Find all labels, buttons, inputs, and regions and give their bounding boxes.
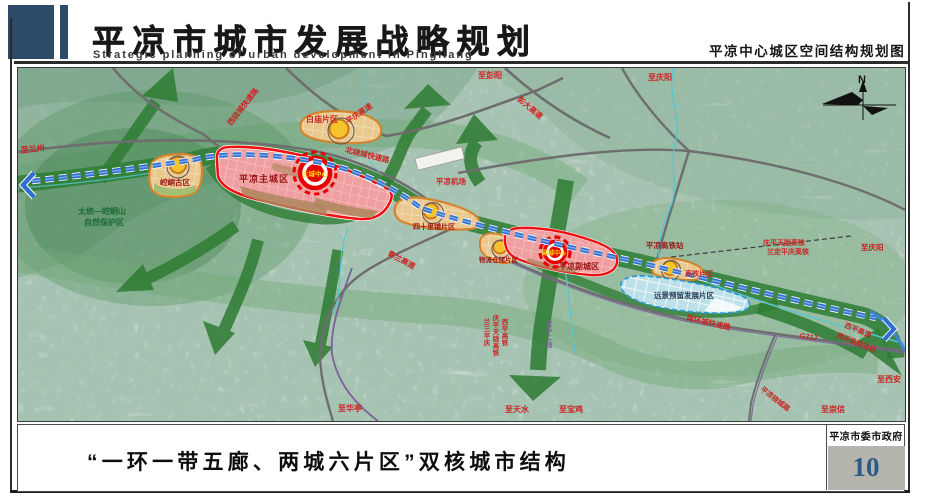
svg-text:四十里铺片区: 四十里铺片区	[413, 222, 455, 231]
svg-text:庆: 庆	[492, 313, 500, 322]
svg-text:庆平天陇高铁: 庆平天陇高铁	[762, 238, 805, 247]
svg-text:至庆阳: 至庆阳	[861, 242, 884, 252]
svg-text:线: 线	[546, 340, 553, 349]
svg-text:至彭阳: 至彭阳	[478, 70, 502, 80]
svg-text:白庙片区: 白庙片区	[306, 114, 338, 124]
svg-text:二: 二	[546, 334, 553, 342]
svg-text:兰: 兰	[484, 317, 491, 326]
svg-text:宝: 宝	[546, 319, 553, 328]
svg-text:兰定平庆高铁: 兰定平庆高铁	[767, 247, 809, 256]
svg-text:至华亭: 至华亭	[338, 403, 362, 413]
svg-text:自然保护区: 自然保护区	[84, 217, 124, 227]
svg-text:庆: 庆	[483, 338, 491, 347]
svg-text:物流仓储片区: 物流仓储片区	[479, 255, 519, 264]
svg-text:平凉高铁站: 平凉高铁站	[646, 240, 684, 250]
svg-text:平: 平	[502, 325, 509, 333]
svg-text:平凉机场: 平凉机场	[436, 176, 466, 186]
svg-text:至西安: 至西安	[877, 374, 901, 384]
svg-text:陇: 陇	[493, 334, 500, 343]
svg-text:天: 天	[493, 328, 500, 336]
svg-text:三: 三	[484, 325, 491, 333]
svg-text:副城中心: 副城中心	[542, 249, 566, 257]
svg-text:高铁片区: 高铁片区	[685, 269, 713, 278]
svg-text:主城中心: 主城中心	[302, 169, 329, 178]
svg-text:至崇信: 至崇信	[821, 404, 845, 414]
svg-text:至天水: 至天水	[505, 404, 530, 414]
svg-text:至宝鸡: 至宝鸡	[559, 404, 583, 414]
svg-text:远景预留发展片区: 远景预留发展片区	[654, 290, 714, 300]
svg-text:高: 高	[502, 331, 509, 340]
svg-text:崆峒古区: 崆峒古区	[160, 177, 190, 187]
svg-text:西: 西	[502, 318, 509, 326]
svg-text:至庆阳: 至庆阳	[648, 72, 672, 82]
svg-text:中: 中	[546, 326, 553, 335]
svg-text:铁: 铁	[492, 348, 500, 357]
svg-text:铁: 铁	[501, 338, 509, 347]
svg-text:平: 平	[493, 321, 500, 329]
svg-text:平: 平	[484, 332, 491, 340]
svg-text:平凉主城区: 平凉主城区	[239, 173, 289, 184]
svg-text:平凉副城区: 平凉副城区	[559, 261, 599, 271]
svg-text:太统—崆峒山: 太统—崆峒山	[77, 206, 126, 216]
svg-text:高: 高	[493, 341, 500, 350]
